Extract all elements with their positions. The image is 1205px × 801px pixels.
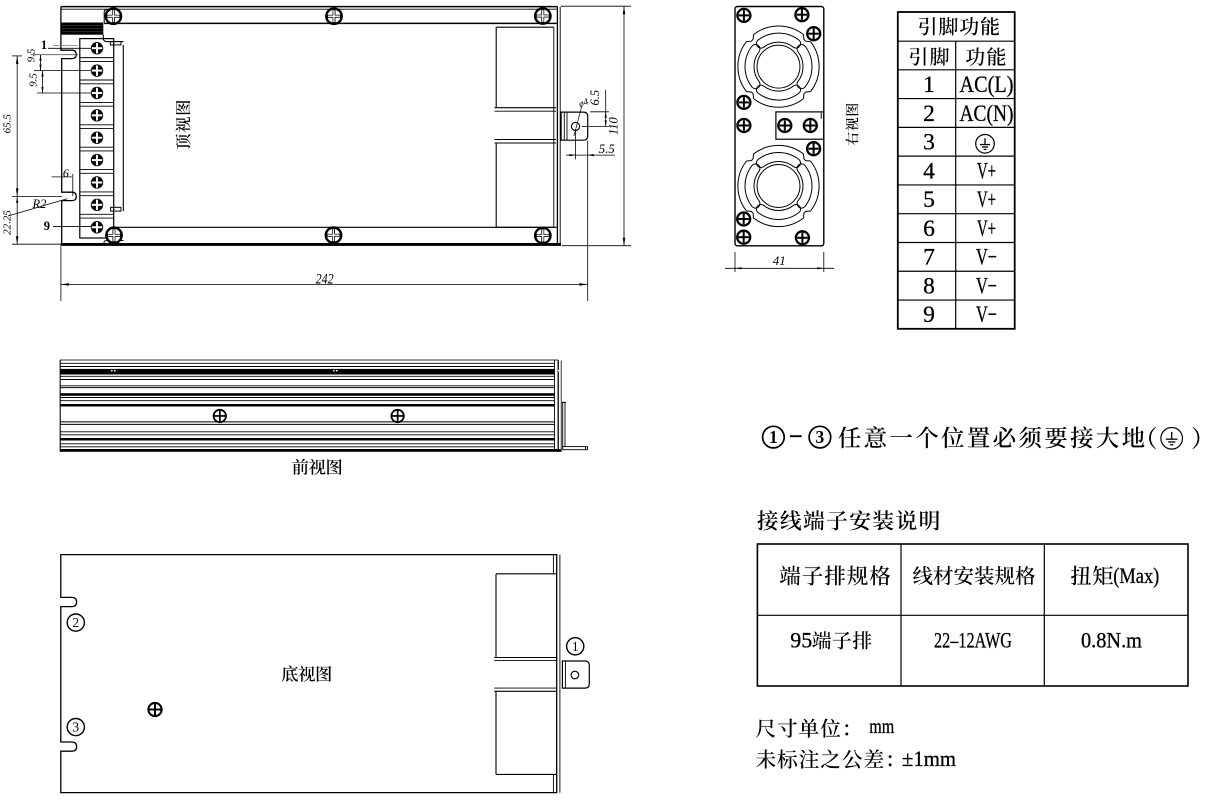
svg-text:5.5: 5.5: [599, 141, 615, 156]
svg-text:5: 5: [923, 187, 935, 213]
svg-text:110: 110: [606, 116, 620, 135]
svg-text:41: 41: [773, 254, 786, 268]
svg-text:1: 1: [923, 72, 935, 98]
svg-text:V+: V+: [977, 158, 996, 184]
svg-text:R2: R2: [31, 197, 46, 211]
svg-text:V−: V−: [976, 245, 997, 271]
svg-text:6: 6: [63, 166, 69, 180]
svg-text:242: 242: [316, 272, 334, 288]
svg-text:22.25: 22.25: [2, 210, 14, 235]
svg-text:V−: V−: [976, 302, 997, 328]
svg-text:(Max): (Max): [1113, 563, 1159, 588]
svg-text:4: 4: [923, 158, 935, 184]
svg-text:65.5: 65.5: [2, 114, 14, 134]
svg-text:1: 1: [41, 38, 47, 52]
svg-text:1: 1: [572, 639, 579, 654]
svg-text:7: 7: [923, 245, 935, 271]
svg-text:6.5: 6.5: [588, 90, 602, 106]
svg-text:1: 1: [769, 427, 778, 447]
svg-text:AC(N): AC(N): [960, 101, 1014, 127]
svg-text:95: 95: [790, 628, 812, 653]
svg-text:3: 3: [923, 130, 935, 156]
svg-text:±1mm: ±1mm: [902, 746, 956, 771]
svg-text:V−: V−: [976, 273, 997, 299]
svg-text:mm: mm: [869, 714, 894, 738]
svg-text:2: 2: [72, 615, 79, 630]
svg-text:22–12AWG: 22–12AWG: [934, 628, 1012, 653]
svg-text:3: 3: [72, 720, 79, 735]
svg-text:V+: V+: [977, 216, 996, 242]
svg-text:8: 8: [923, 273, 935, 299]
svg-text:9: 9: [923, 302, 935, 328]
svg-text:2: 2: [923, 101, 935, 127]
svg-text:AC(L): AC(L): [960, 72, 1014, 98]
svg-text:3: 3: [816, 427, 825, 447]
svg-text:V+: V+: [977, 187, 996, 213]
svg-text:9.5: 9.5: [26, 48, 38, 62]
svg-text:0.8N.m: 0.8N.m: [1081, 628, 1142, 653]
svg-text:9.5: 9.5: [28, 73, 40, 87]
svg-text:6: 6: [923, 216, 935, 242]
svg-text:9: 9: [44, 219, 50, 233]
